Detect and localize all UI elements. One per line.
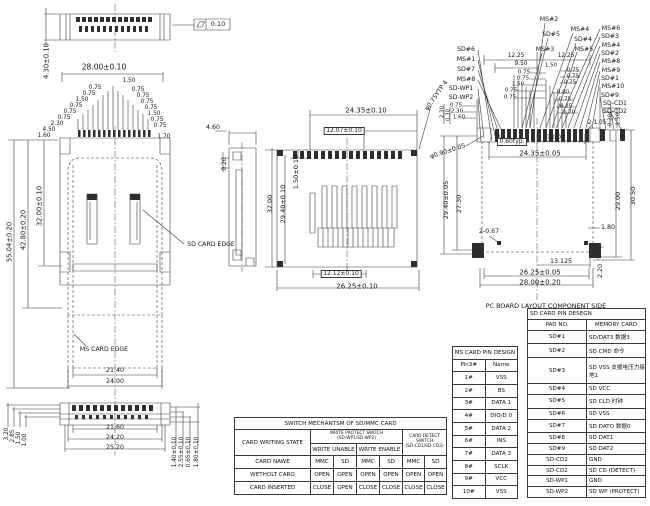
table-cell: VCC (485, 473, 518, 486)
table-row: 9#VCC (453, 473, 518, 486)
table-row: SD#8SD DAT1 (528, 433, 646, 444)
table-row: SD#7SD DATO 数据0 (528, 419, 646, 433)
pin-callout-label: SD-CD2 (603, 109, 627, 115)
table-cell: 3# (453, 397, 486, 410)
column-header: PAD NO. (528, 319, 587, 330)
dimension-label: 0.75 (559, 97, 571, 103)
table-cell: SD#9 (528, 444, 587, 455)
dimension-label: 21.40 (106, 368, 124, 374)
dimension-label: 32.00 (267, 195, 274, 214)
table-cell: DATA 3 (485, 448, 518, 461)
table-cell: CLOSE (403, 482, 425, 495)
table-row: SD-WP1GND (528, 476, 646, 487)
pin-callout-label: MS#2 (540, 17, 558, 23)
table-cell: CLOSE (425, 482, 447, 495)
dimension-label: 30.50 (630, 187, 637, 206)
table-cell: 10# (453, 486, 486, 499)
dimension-label: φ0.90±0.05 (430, 143, 467, 160)
table-cell: 1# (453, 372, 486, 385)
pin-callout-label: MS#9 (602, 68, 620, 74)
table-cell: VSS (485, 486, 518, 499)
pin-callout-label: SD#3 (601, 34, 619, 40)
pin-callout-label: MS#8 (602, 59, 620, 65)
dimension-label: 4.30±0.10 (44, 43, 51, 79)
table-cell: MMC (311, 456, 334, 469)
table-cell: OPEN (403, 469, 425, 482)
table-cell: SD#7 (528, 419, 587, 433)
pin-callout-label: SD#2 (601, 51, 619, 57)
dimension-label: 12.07 (547, 135, 565, 141)
dimension-label: 1.70 (158, 135, 171, 141)
table-row: 5#DATA 2 (453, 422, 518, 435)
dimension-label: 0.75 (564, 80, 576, 86)
annotation-label: MS CARD EDGE (80, 347, 128, 353)
table-row: 8#SCLK (453, 460, 518, 473)
table-row: SD#9SD DAT2 (528, 444, 646, 455)
dimension-label: 26.25±0.05 (519, 270, 561, 277)
dimension-label: 24.35±0.10 (345, 108, 387, 115)
table-cell: SD CMD 命令 (587, 344, 646, 358)
table-cell: SD#4 (528, 384, 587, 395)
pin-callout-label: MS#6 (602, 26, 620, 32)
dimension-label: 24.35±0.05 (519, 151, 561, 158)
pin-callout-label: SD-WP2 (449, 95, 473, 101)
pin-callout-label: MS#4 (571, 27, 589, 33)
table-row: SD-CD2SD CD (DETECT) (528, 465, 646, 476)
table-cell: SD VSS 支援电压力接地1 (587, 358, 646, 384)
table-cell: SD-WP2 (528, 487, 587, 498)
table-cell: SD/DAT3 数据3 (587, 330, 646, 344)
table-row: SD-WP2SD WP (PROTECT) (528, 487, 646, 498)
pin-callout-label: MS#4 (602, 43, 620, 49)
table-cell: SD#2 (528, 344, 587, 358)
dimension-label: 0.60typ. (497, 138, 527, 146)
dimension-label: 2-0.67 (479, 229, 499, 235)
dimension-label: 12.25 (558, 54, 575, 60)
table-cell: CLOSE (311, 482, 334, 495)
table-cell: 7# (453, 448, 486, 461)
table-cell: 6# (453, 435, 486, 448)
engineering-drawing-canvas: 4.30±0.100.1028.00±0.101.500.750.751.500… (0, 0, 650, 506)
dimension-label: 29.00 (615, 192, 622, 211)
table-row: 6#INS (453, 435, 518, 448)
dimension-label: 24.00 (106, 379, 124, 385)
dimension-label: 24.20 (106, 435, 124, 441)
dimension-label: 26.25±0.10 (336, 284, 378, 291)
table-cell: OPEN (357, 469, 380, 482)
table-cell: SD-CD2 (528, 465, 587, 476)
table-row: SD#6SD VSS (528, 408, 646, 419)
table-cell: SD DATO 数据0 (587, 419, 646, 433)
dimension-label: 1.60 (453, 115, 465, 121)
dimension-label: 55.04±0.20 (7, 222, 14, 262)
pin-callout-label: SD#5 (542, 32, 560, 38)
dimension-label: 1.60 (38, 134, 51, 140)
table-cell: VSS (485, 372, 518, 385)
dimension-label: 0.65±0.10 (187, 437, 193, 468)
dimension-label: 4.60 (206, 125, 220, 131)
pin-callout-label: SD-CD1 (603, 101, 627, 107)
write-protect-header: WRITE PROTECT SWITCH (SD-WP1/SD-WP2) (311, 430, 403, 444)
dimension-label: 1.40±0.10 (173, 437, 179, 468)
dimension-label: 12.25 (508, 54, 525, 60)
dimension-label: 1.80±0.10 (195, 437, 201, 468)
dimension-label: 1.70 (563, 110, 575, 116)
annotation-label: SD CARD EDGE (187, 242, 235, 248)
table-cell: SD WP (PROTECT) (587, 487, 646, 498)
table-cell: MMC (357, 456, 380, 469)
table-cell: SD VCC (587, 384, 646, 395)
table-cell: GND (587, 454, 646, 465)
pin-callout-label: SD#7 (457, 67, 475, 73)
write-protect-sub: (SD-WP1/SD-WP2) (311, 437, 402, 442)
dimension-label: 28.00±0.20 (519, 280, 561, 287)
table-row: 4#DIO/D 0 (453, 410, 518, 423)
dimension-label: 2.55±0.10 (180, 437, 186, 468)
switch-col1-header: CARD WRITING STATE (235, 430, 311, 456)
table-cell: OPEN (425, 469, 447, 482)
pin-callout-label: SD#6 (457, 47, 475, 53)
table-cell: SD-WP1 (528, 476, 587, 487)
table-cell: SD (380, 456, 403, 469)
dimension-label: 0.20 (223, 158, 229, 171)
ms-card-pin-table: MS CARD PIN DESIGNPin3#Name1#VSS2#BS3#DA… (452, 346, 518, 499)
table-row: SD#3SD VSS 支援电压力接地1 (528, 358, 646, 384)
dimension-label: 12.12±0.10 (321, 270, 362, 278)
table-cell: SD#3 (528, 358, 587, 384)
pin-callout-label: SD#9 (601, 93, 619, 99)
dimension-label: 42.80±0.20 (21, 210, 28, 250)
pin-callout-label: MS#10 (602, 84, 624, 90)
dimension-label: 0.75 (505, 88, 517, 94)
table-cell: SD DAT1 (587, 433, 646, 444)
column-header: Name (485, 359, 518, 372)
pin-callout-label: MS#1 (457, 57, 475, 63)
dimension-label: 25.20 (106, 445, 124, 451)
table-cell: GND (587, 476, 646, 487)
pin-callout-label: MS#5 (575, 47, 593, 53)
table-row: SD#5SD CLD 时钟 (528, 395, 646, 409)
table-row: 3#DATA 1 (453, 397, 518, 410)
dimension-label: φ0.75YTP 4 (424, 80, 449, 112)
table-cell: OPEN (334, 482, 357, 495)
pin-callout-label: SD-WP1 (449, 86, 473, 92)
table-cell: SD (425, 456, 447, 469)
card-detect-header: CARD DETECT SWITCH (SD-CD1/SD-CD2) (403, 430, 447, 456)
write-enable-cell: WRITE ENABLE (357, 444, 403, 456)
dimension-label: 1.50 (545, 63, 557, 69)
table-cell: 5# (453, 422, 486, 435)
table-cell: CLOSE (357, 482, 380, 495)
table-row: 7#DATA 3 (453, 448, 518, 461)
table-title: MS CARD PIN DESIGN (453, 347, 518, 360)
dimension-label: 29.40±0.10 (280, 185, 287, 224)
dimension-label: 1.00 (23, 434, 29, 447)
dimension-label: 1.50±0.10 (293, 155, 300, 189)
dimension-label: 0.75 (154, 124, 167, 130)
dimension-label: 28.00±0.10 (82, 63, 126, 71)
table-row: SD-CD2GND (528, 454, 646, 465)
dimension-label: 12.07±0.10 (324, 127, 365, 135)
dimension-label: 0.20 (608, 114, 614, 126)
table-cell: OPEN (334, 469, 357, 482)
table-cell: DATA 1 (485, 397, 518, 410)
table-cell: SD VSS (587, 408, 646, 419)
write-unable-cell: WRITE UNABLE (311, 444, 357, 456)
switch-mechanism-table: SWITCH MECHANTSM OF SD/MMC CARD CARD WRI… (234, 417, 446, 495)
dimension-label: 2-1.05 (588, 121, 607, 127)
table-cell: DATA 2 (485, 422, 518, 435)
dimension-label: 2.20 (598, 264, 604, 278)
dimension-label: 32.00±0.10 (37, 186, 44, 226)
table-row: 10#VSS (453, 486, 518, 499)
sd-card-pin-table: SD CARD PIN DESEGNPAD NO.MEMORY CARDSD#1… (527, 308, 646, 498)
table-cell: SD#6 (528, 408, 587, 419)
table-cell: SD#1 (528, 330, 587, 344)
column-header: MEMORY CARD (587, 319, 646, 330)
switch-table-title: SWITCH MECHANTSM OF SD/MMC CARD (235, 418, 447, 430)
dimension-label: 1.80 (601, 225, 615, 231)
dimension-label: 0.80 (557, 90, 569, 96)
pin-callout-label: SD#1 (601, 76, 619, 82)
table-cell: OPEN (380, 469, 403, 482)
table-cell: SCLK (485, 460, 518, 473)
dimension-label: 27.30 (456, 195, 463, 214)
dimension-label: 0.10 (211, 21, 225, 28)
row-label: WETHOLT CARO (235, 469, 311, 482)
table-cell: 4# (453, 410, 486, 423)
table-cell: OPEN (311, 469, 334, 482)
table-row: 2#BS (453, 384, 518, 397)
table-title: SD CARD PIN DESEGN (528, 309, 646, 320)
table-cell: 9# (453, 473, 486, 486)
column-header: Pin3# (453, 359, 486, 372)
dimension-label: 29.40±0.05 (443, 181, 450, 220)
table-cell: BS (485, 384, 518, 397)
table-cell: 8# (453, 460, 486, 473)
dimension-label: 9.50 (515, 62, 528, 68)
dimension-label: 13.125 (550, 259, 572, 265)
table-cell: SD-CD2 (528, 454, 587, 465)
table-cell: SD CLD 时钟 (587, 395, 646, 409)
table-cell: SD (334, 456, 357, 469)
table-cell: SD#8 (528, 433, 587, 444)
table-cell: CLOSE (380, 482, 403, 495)
row-label: CARD NAWE (235, 456, 311, 469)
table-cell: MMC (403, 456, 425, 469)
pin-callout-label: MS#3 (536, 47, 554, 53)
table-cell: SD CD (DETECT) (587, 465, 646, 476)
dimension-label: 1.50 (123, 79, 136, 85)
table-cell: 2# (453, 384, 486, 397)
card-detect-sub: (SD-CD1/SD-CD2) (403, 445, 446, 450)
row-label: CARD INSERTED (235, 482, 311, 495)
dimension-label: 21.60 (106, 425, 124, 431)
pin-callout-label: SD#4 (574, 37, 592, 43)
table-cell: SD#5 (528, 395, 587, 409)
table-row: SD#4SD VCC (528, 384, 646, 395)
table-cell: SD DAT2 (587, 444, 646, 455)
table-cell: DIO/D 0 (485, 410, 518, 423)
table-row: SD#2SD CMD 命令 (528, 344, 646, 358)
table-row: 1#VSS (453, 372, 518, 385)
table-cell: INS (485, 435, 518, 448)
dimension-label: 0.75 (504, 95, 516, 101)
pin-callout-label: MS#8 (457, 77, 475, 83)
table-row: SD#1SD/DAT3 数据3 (528, 330, 646, 344)
